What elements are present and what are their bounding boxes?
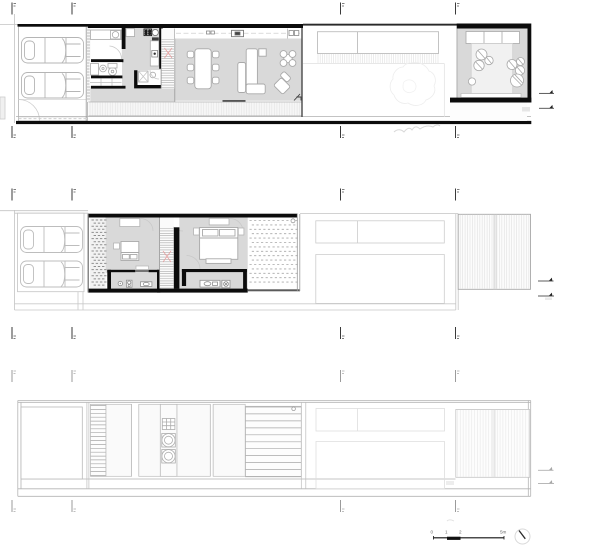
svg-text:1: 1 (445, 530, 448, 535)
svg-text:0: 0 (431, 530, 434, 535)
svg-text:5m: 5m (500, 530, 507, 535)
svg-text:2: 2 (459, 530, 462, 535)
